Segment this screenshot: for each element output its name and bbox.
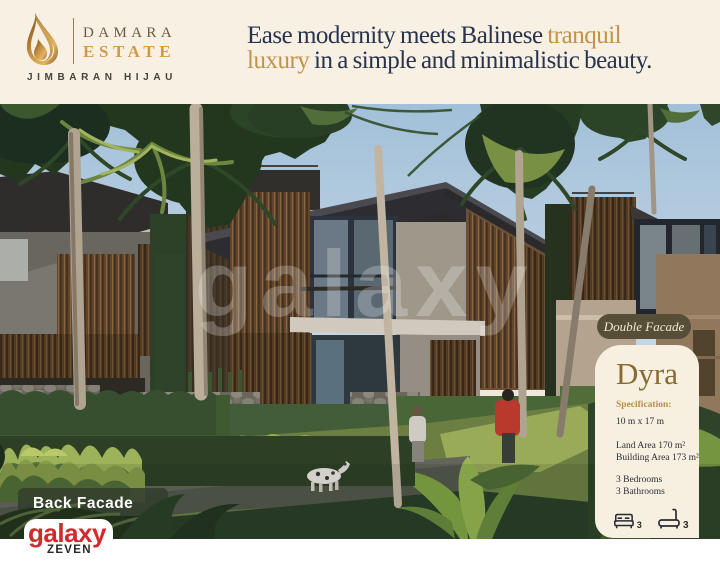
svg-text:3: 3	[637, 520, 642, 530]
svg-text:galaxy: galaxy	[195, 231, 536, 336]
svg-text:3: 3	[683, 520, 689, 531]
